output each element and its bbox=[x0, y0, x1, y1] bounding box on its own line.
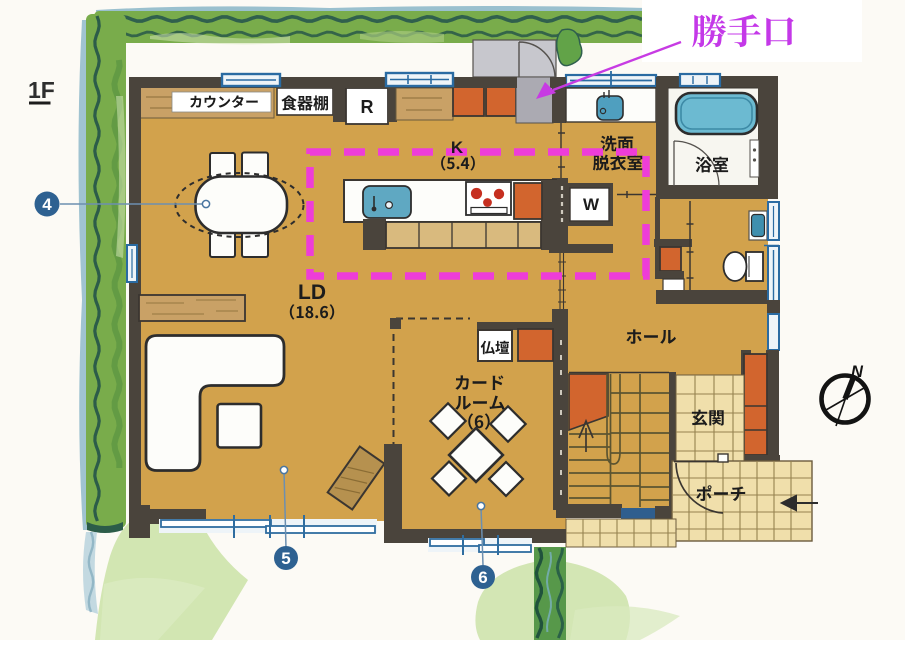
svg-text:5: 5 bbox=[281, 549, 290, 568]
svg-text:6: 6 bbox=[478, 568, 487, 587]
svg-text:1F: 1F bbox=[28, 77, 55, 103]
svg-text:4: 4 bbox=[42, 195, 52, 214]
svg-text:LD: LD bbox=[298, 281, 326, 304]
svg-text:R: R bbox=[361, 97, 374, 117]
svg-text:K: K bbox=[451, 138, 464, 157]
svg-text:W: W bbox=[583, 195, 600, 214]
svg-text:N: N bbox=[851, 363, 864, 381]
